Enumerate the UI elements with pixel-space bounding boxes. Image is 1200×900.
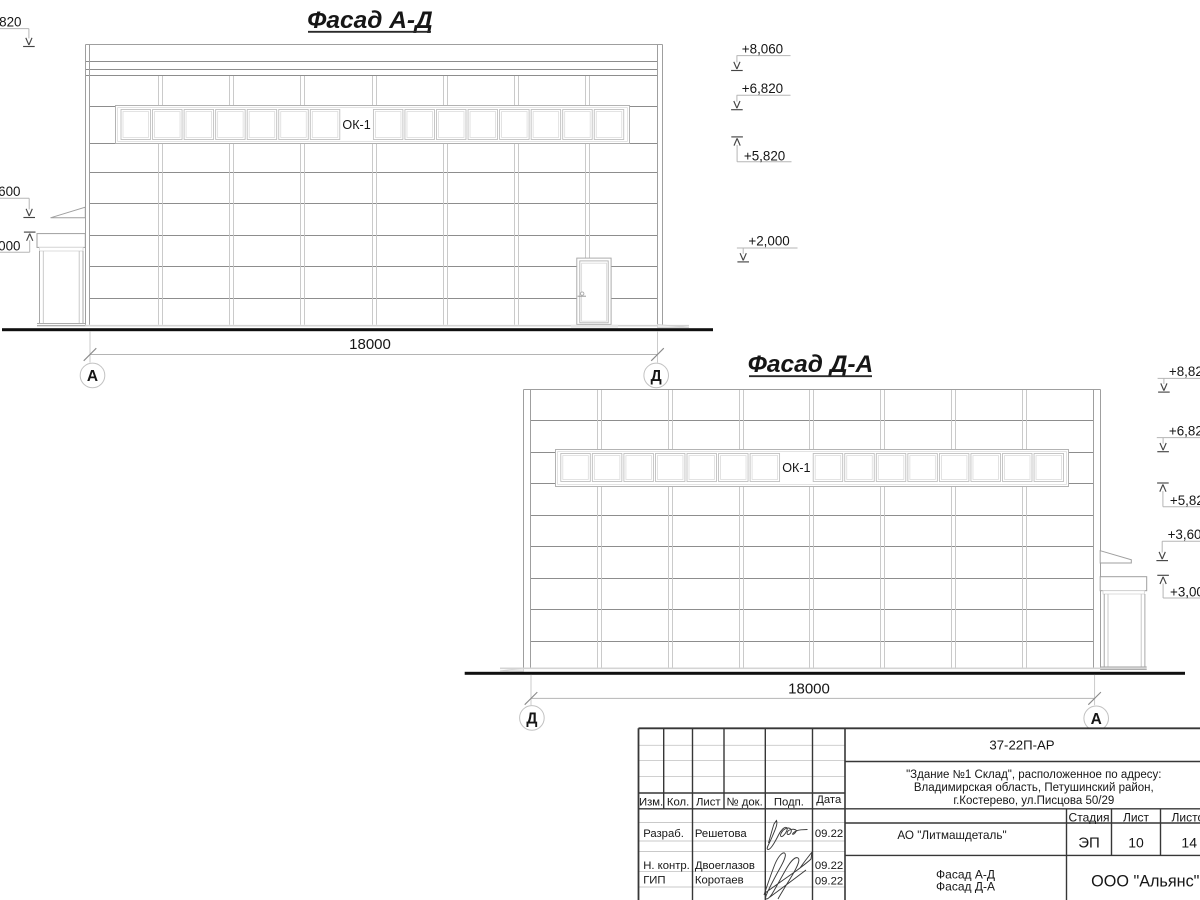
svg-text:Д: Д: [651, 368, 662, 385]
svg-text:18000: 18000: [788, 681, 830, 698]
svg-text:09.22: 09.22: [815, 860, 843, 872]
svg-text:+5,820: +5,820: [1170, 493, 1200, 508]
svg-text:10: 10: [1128, 835, 1144, 851]
svg-text:ГИП: ГИП: [643, 875, 665, 887]
svg-text:Фасад Д-А: Фасад Д-А: [936, 880, 995, 894]
svg-text:ЭП: ЭП: [1078, 835, 1100, 852]
svg-text:+8,820: +8,820: [1169, 364, 1200, 379]
svg-text:Дата: Дата: [816, 794, 842, 806]
svg-text:+3,000: +3,000: [1170, 585, 1200, 600]
svg-text:Владимирская область, Петушинс: Владимирская область, Петушинский район,: [914, 782, 1154, 794]
svg-text:Фасад Д-А: Фасад Д-А: [748, 351, 874, 378]
svg-text:+8,060: +8,060: [742, 41, 783, 56]
svg-text:А: А: [87, 368, 98, 385]
svg-text:АО "Литмашдеталь": АО "Литмашдеталь": [897, 829, 1006, 842]
svg-text:Коротаев: Коротаев: [695, 875, 744, 887]
svg-text:18000: 18000: [349, 336, 391, 353]
svg-text:+6,820: +6,820: [1169, 423, 1200, 438]
svg-text:Кол.: Кол.: [667, 796, 689, 808]
svg-text:+3,000: +3,000: [0, 239, 21, 254]
svg-text:+3,600: +3,600: [1168, 527, 1200, 542]
svg-text:А: А: [1091, 711, 1102, 728]
svg-text:09.22: 09.22: [815, 828, 843, 840]
svg-text:ОК-1: ОК-1: [782, 461, 810, 475]
svg-text:г.Костерево, ул.Писцова 50/29: г.Костерево, ул.Писцова 50/29: [953, 795, 1114, 807]
svg-text:14: 14: [1181, 835, 1197, 851]
svg-text:Решетова: Решетова: [695, 828, 747, 840]
svg-text:+6,820: +6,820: [742, 81, 783, 96]
svg-text:Стадия: Стадия: [1069, 810, 1110, 824]
svg-text:Двоеглазов: Двоеглазов: [695, 860, 755, 872]
svg-text:Фасад А-Д: Фасад А-Д: [307, 7, 433, 34]
svg-text:Лист: Лист: [1123, 810, 1150, 824]
svg-text:Листов: Листов: [1172, 810, 1200, 824]
svg-text:Д: Д: [526, 711, 537, 728]
svg-text:№ док.: № док.: [727, 796, 763, 808]
svg-text:+5,820: +5,820: [744, 148, 785, 163]
svg-text:Разраб.: Разраб.: [643, 828, 684, 840]
svg-text:09.22: 09.22: [815, 875, 843, 887]
svg-text:ОК-1: ОК-1: [342, 118, 370, 132]
svg-text:Лист: Лист: [696, 796, 721, 808]
svg-text:ООО "Альянс": ООО "Альянс": [1091, 873, 1199, 891]
svg-text:37-22П-АР: 37-22П-АР: [989, 738, 1054, 753]
svg-text:+2,000: +2,000: [748, 234, 789, 249]
svg-text:+8,820: +8,820: [0, 14, 22, 29]
svg-text:"Здание №1 Склад", расположенн: "Здание №1 Склад", расположенное по адре…: [906, 769, 1161, 781]
svg-text:+3,600: +3,600: [0, 184, 21, 199]
svg-text:Н. контр.: Н. контр.: [643, 860, 690, 872]
svg-text:Изм.: Изм.: [639, 796, 663, 808]
svg-text:Подп.: Подп.: [774, 796, 804, 808]
